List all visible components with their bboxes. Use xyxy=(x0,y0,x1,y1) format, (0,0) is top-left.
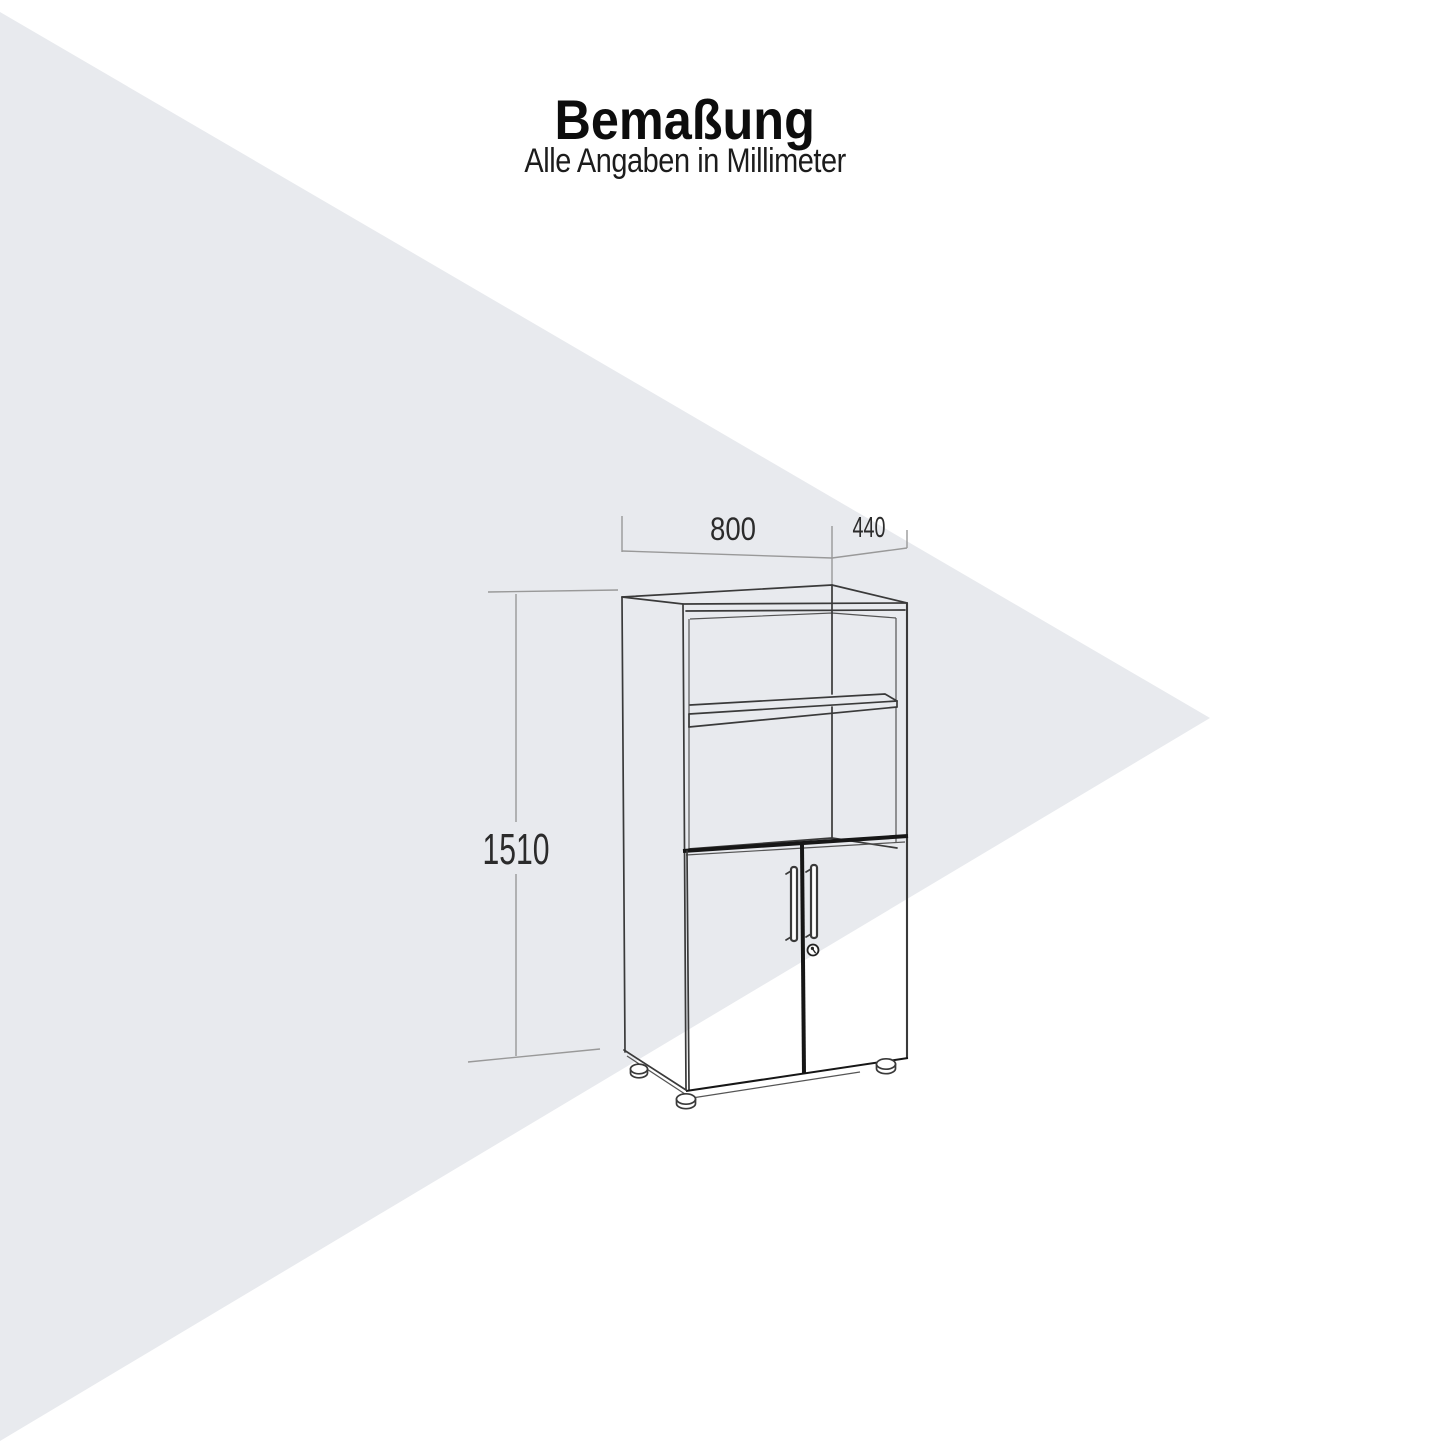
door-bottom-edge xyxy=(686,1058,908,1091)
width-dimension-label: 800 xyxy=(710,511,756,547)
foot-front-right xyxy=(877,1059,896,1074)
cabinet-top-thickness xyxy=(686,610,905,611)
page-subtitle: Alle Angaben in Millimeter xyxy=(0,142,1370,181)
dimension-diagram-page: 800 440 1510 Bemaßung Alle Angaben in Mi… xyxy=(0,0,1445,1445)
foot-front-left xyxy=(677,1094,696,1109)
height-dimension-label: 1510 xyxy=(483,825,550,874)
background-triangle xyxy=(0,12,1210,1441)
foot-back-left xyxy=(631,1064,648,1078)
door-gap xyxy=(802,845,804,1074)
door-lock-icon xyxy=(808,945,819,956)
depth-dimension-label: 440 xyxy=(853,512,886,544)
technical-drawing-canvas: 800 440 1510 xyxy=(0,0,1445,1445)
